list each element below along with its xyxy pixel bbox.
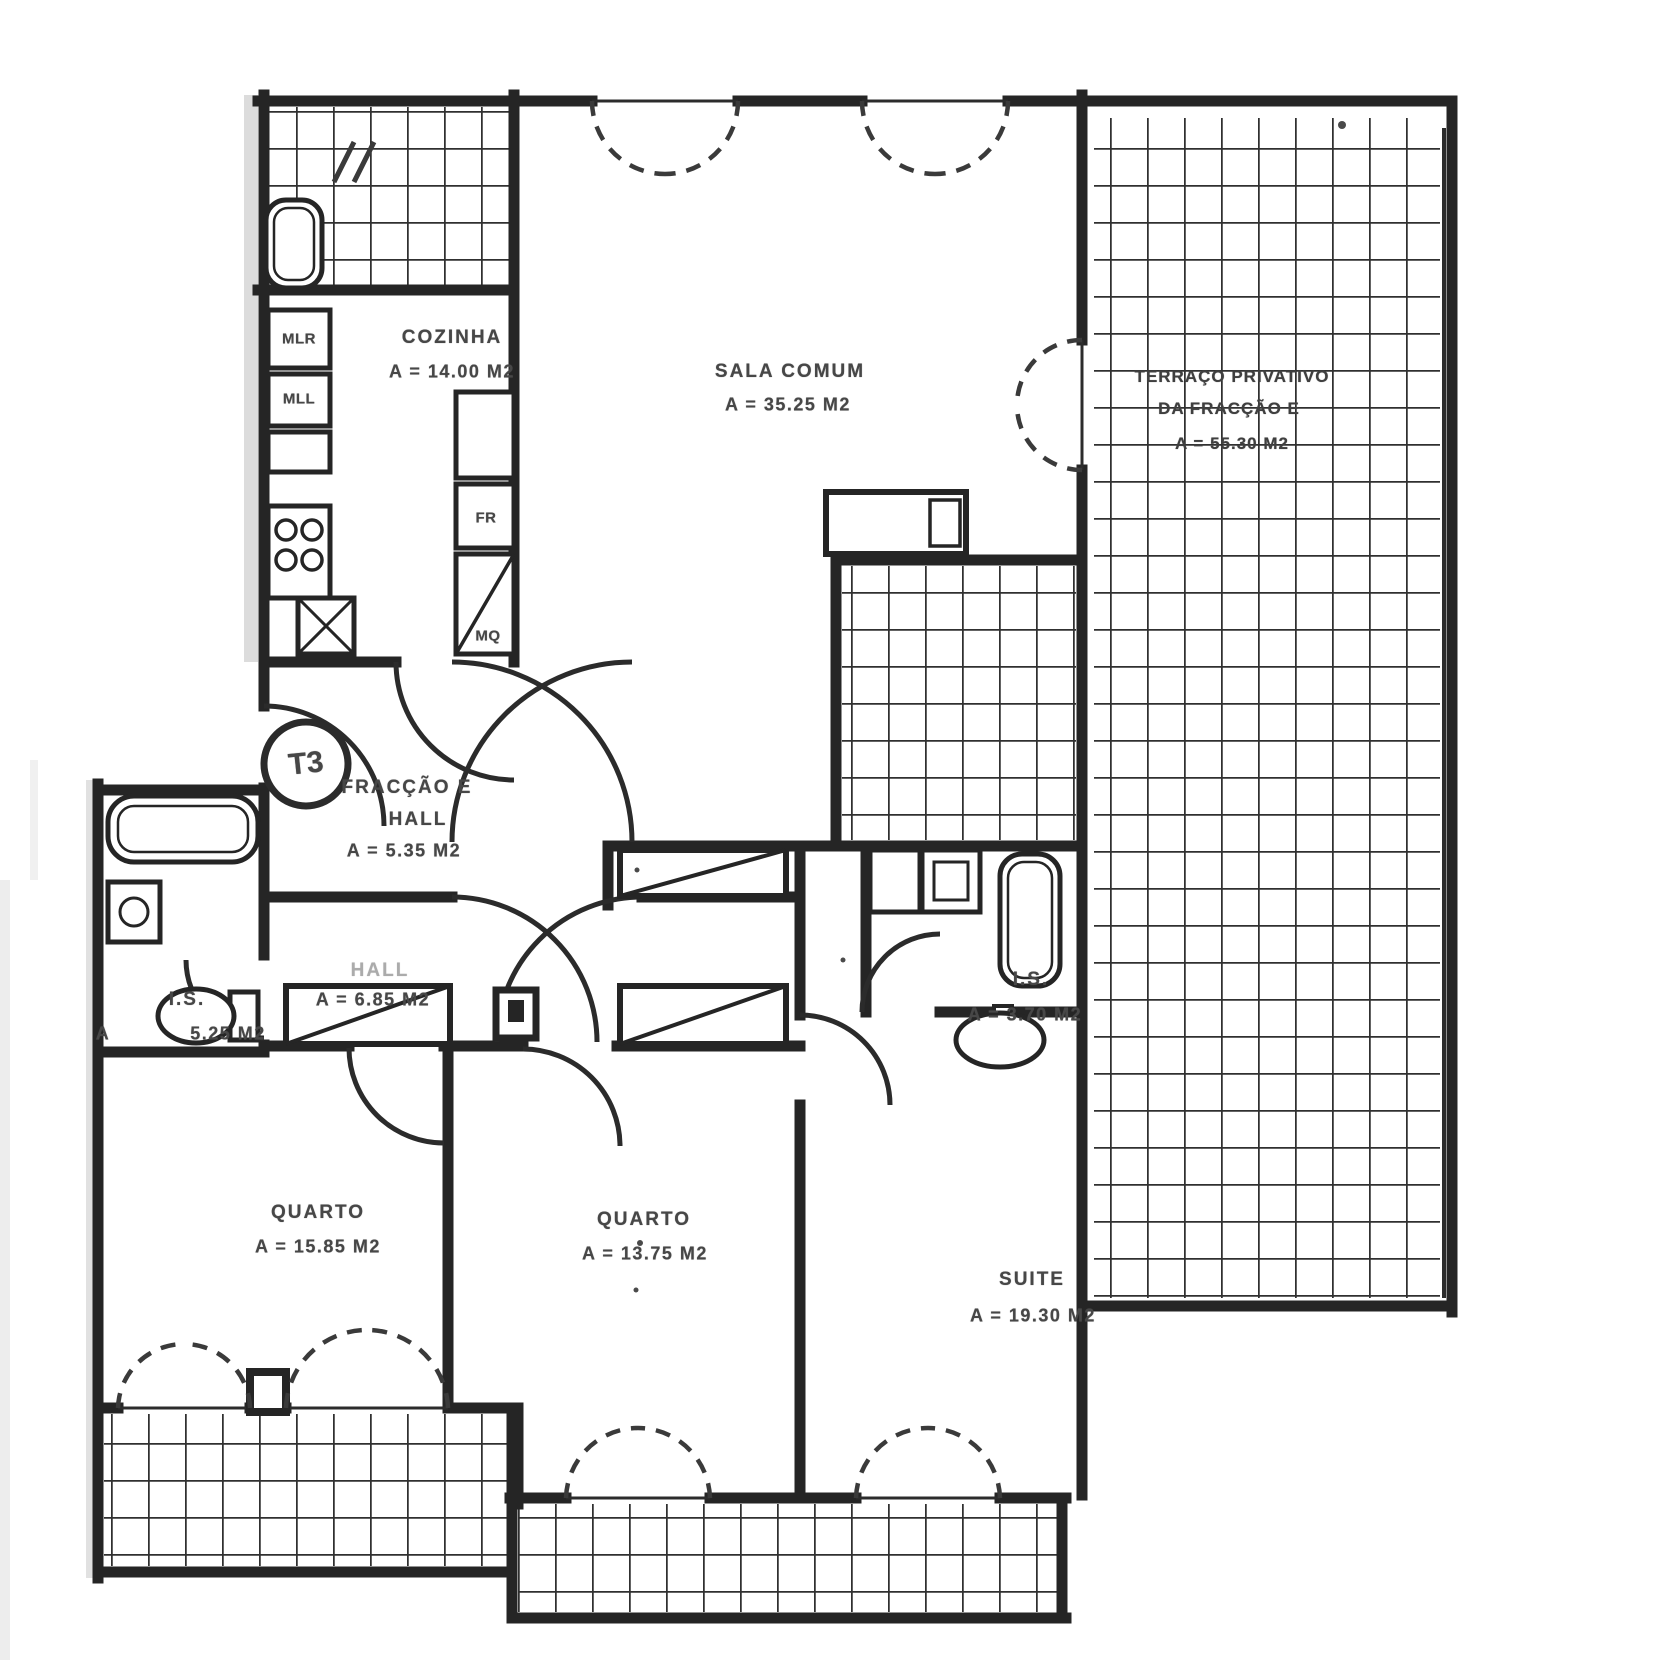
room-area-is2: A = 3.70 M2 <box>968 1005 1082 1026</box>
room-area-suite: A = 19.30 M2 <box>970 1306 1096 1327</box>
shower-icon <box>922 850 980 912</box>
quarto2-door-arc <box>523 1049 620 1146</box>
room-area-is1-prefix: A <box>96 1024 111 1045</box>
appliance-label-mlr: MLR <box>282 331 316 348</box>
sala-hall-door-arc <box>452 662 632 842</box>
room-area-quarto2: A = 13.75 M2 <box>582 1244 708 1265</box>
bathtub-icon <box>108 796 258 862</box>
pantry-icon <box>456 392 514 478</box>
room-area-quarto1: A = 15.85 M2 <box>255 1237 381 1258</box>
room-label-quarto1: QUARTO <box>271 1202 365 1224</box>
stove-icon <box>268 506 330 598</box>
bathroom2-door-arc <box>862 934 940 1012</box>
tiled-balcony-bottom-middle <box>518 1504 1058 1612</box>
wardrobe-icon <box>620 850 786 896</box>
tiled-terrace-private <box>1094 118 1440 1298</box>
appliance-label-mll: MLL <box>283 391 315 408</box>
window-pillar <box>250 1372 286 1412</box>
sala-hall-door-arc <box>452 662 632 842</box>
sink-icon <box>108 882 160 942</box>
unit-type-badge: T3 <box>287 745 325 782</box>
sideboard-icon <box>826 492 966 554</box>
room-area-sala-comum: A = 35.25 M2 <box>725 395 851 416</box>
room-label-is2: I.S. <box>1013 969 1050 991</box>
cabinet-icon <box>870 850 920 912</box>
room-label-suite: SUITE <box>999 1269 1065 1291</box>
appliance-label-fr: FR <box>476 510 497 527</box>
room-area-cozinha: A = 14.00 M2 <box>389 362 515 383</box>
wardrobe-icon <box>620 986 786 1044</box>
floorplan-page: T3 COZINHA A = 14.00 M2 SALA COMUM A = 3… <box>0 0 1673 1665</box>
room-label-quarto2: QUARTO <box>597 1209 691 1231</box>
room-label-cozinha: COZINHA <box>402 327 503 349</box>
room-label-terraco-line1: TERRAÇO PRIVATIVO <box>1135 367 1330 387</box>
appliance-label-mq: MQ <box>475 628 500 645</box>
room-label-is1: I.S. <box>169 989 206 1011</box>
counter-icon <box>268 432 330 472</box>
kitchen-sink-icon <box>298 598 354 654</box>
laundry-tub-icon <box>266 200 322 288</box>
wardrobes <box>286 850 786 1044</box>
room-label-hall: HALL <box>351 960 410 982</box>
bathtub-icon <box>1000 854 1060 986</box>
suite-door-arc <box>800 1015 890 1105</box>
room-area-hall: A = 6.85 M2 <box>316 990 430 1011</box>
room-label-fraccao: FRACÇÃO E <box>342 777 473 799</box>
room-label-sala-comum: SALA COMUM <box>715 361 865 383</box>
quarto1-door-arc <box>349 1048 444 1143</box>
tiled-balcony-bottom-left <box>104 1414 508 1566</box>
tiled-patio-interior <box>842 566 1076 840</box>
room-label-entry-hall: HALL <box>389 809 448 831</box>
hall-pillar <box>496 990 536 1038</box>
room-area-entry-hall: A = 5.35 M2 <box>347 841 461 862</box>
room-area-is1: 5.25 M2 <box>190 1024 266 1045</box>
room-label-terraco-line2: DA FRACÇÃO E <box>1158 399 1300 419</box>
bathroom2-fixtures <box>870 850 1060 1067</box>
room-area-terraco: A = 55.30 M2 <box>1175 434 1289 454</box>
kitchen-appliances <box>268 310 354 654</box>
floorplan-drawing <box>0 0 1673 1665</box>
